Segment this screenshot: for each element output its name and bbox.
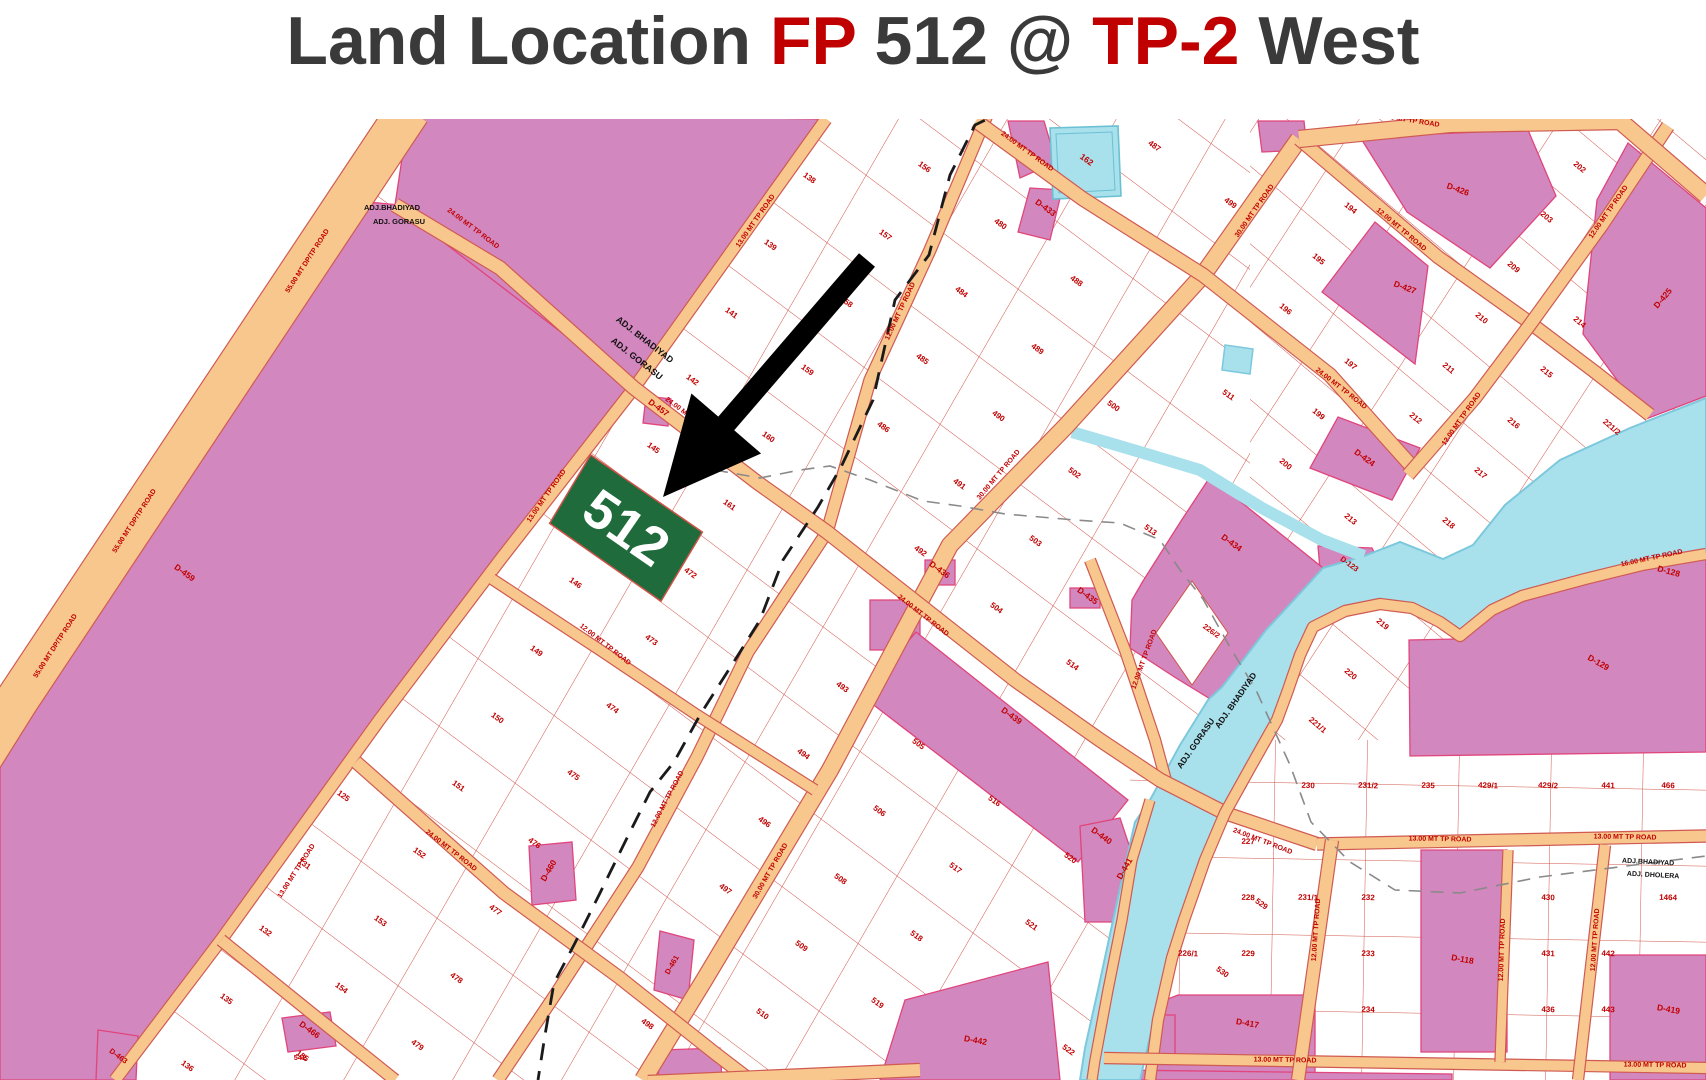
svg-text:542: 542 xyxy=(294,1053,307,1062)
svg-text:Land Location FP 512 @ TP-2 We: Land Location FP 512 @ TP-2 West xyxy=(286,3,1419,79)
svg-text:13.00 MT TP ROAD: 13.00 MT TP ROAD xyxy=(1594,833,1657,841)
svg-text:441: 441 xyxy=(1601,781,1615,790)
svg-text:1464: 1464 xyxy=(1659,893,1678,903)
svg-text:228: 228 xyxy=(1241,893,1255,902)
svg-text:436: 436 xyxy=(1541,1005,1555,1014)
svg-text:ADJ. GORASU: ADJ. GORASU xyxy=(373,217,425,226)
svg-text:234: 234 xyxy=(1361,1005,1375,1014)
svg-text:233: 233 xyxy=(1361,949,1375,958)
svg-text:13.00 MT TP ROAD: 13.00 MT TP ROAD xyxy=(1254,1056,1317,1064)
svg-text:429/2: 429/2 xyxy=(1538,781,1559,791)
svg-text:230: 230 xyxy=(1301,781,1315,790)
svg-text:226/1: 226/1 xyxy=(1178,949,1199,959)
svg-text:429/1: 429/1 xyxy=(1478,781,1499,791)
svg-text:431: 431 xyxy=(1541,949,1555,958)
svg-text:466: 466 xyxy=(1661,781,1675,790)
svg-text:231/2: 231/2 xyxy=(1358,781,1379,791)
svg-text:13.00 MT TP ROAD: 13.00 MT TP ROAD xyxy=(1409,835,1472,843)
svg-text:442: 442 xyxy=(1601,949,1615,958)
svg-text:235: 235 xyxy=(1421,781,1435,790)
svg-text:232: 232 xyxy=(1361,893,1375,902)
svg-text:13.00 MT TP ROAD: 13.00 MT TP ROAD xyxy=(1624,1061,1687,1069)
svg-text:ADJ.BHADIYAD: ADJ.BHADIYAD xyxy=(364,203,421,212)
svg-text:229: 229 xyxy=(1241,949,1255,958)
svg-text:443: 443 xyxy=(1601,1005,1615,1014)
svg-text:430: 430 xyxy=(1541,893,1555,902)
